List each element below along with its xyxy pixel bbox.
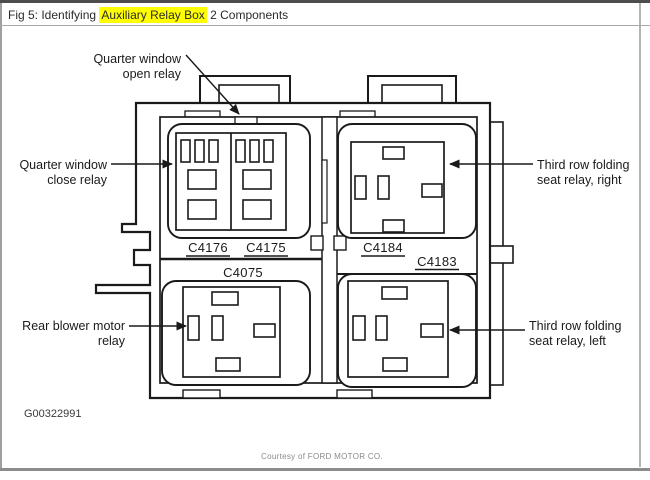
mounting-tab-right-inner: [382, 85, 442, 103]
bottom-notch-right: [337, 390, 372, 398]
pin-slot: [181, 140, 190, 162]
center-joint-left: [311, 236, 323, 250]
connector-label-c4075: C4075: [223, 265, 263, 280]
center-channel-rib: [322, 160, 327, 223]
figure-id: G00322991: [24, 408, 82, 420]
pin-slot: [383, 220, 404, 232]
relay-socket-quarter-window: [168, 117, 310, 238]
connector-label-c4183: C4183: [417, 254, 457, 269]
figure-title-highlight: Auxiliary Relay Box: [99, 7, 206, 23]
pin-slot: [236, 140, 245, 162]
pin-slot: [188, 316, 199, 340]
label-third-row-right-line2: seat relay, right: [537, 173, 622, 187]
label-quarter-close-line1: Quarter window: [19, 158, 108, 172]
pin-slot: [264, 140, 273, 162]
connector-label-c4184: C4184: [363, 240, 403, 255]
pin-slot: [355, 176, 366, 199]
label-third-row-left-line1: Third row folding: [529, 319, 621, 333]
pin-slot: [376, 316, 387, 340]
pin-slot: [209, 140, 218, 162]
label-quarter-open-line2: open relay: [123, 67, 182, 81]
pin-slot: [254, 324, 275, 337]
pin-slot: [243, 170, 271, 189]
pin-slot: [382, 287, 407, 299]
pin-slot: [212, 316, 223, 340]
mounting-tab-left-inner: [219, 85, 279, 103]
pin-slot: [212, 292, 238, 305]
pin-slot: [188, 170, 216, 189]
figure-title-suffix: 2 Components: [207, 8, 288, 22]
label-rear-blower-line2: relay: [98, 334, 126, 348]
connector-label-c4175: C4175: [246, 240, 286, 255]
pin-slot: [383, 358, 407, 371]
label-quarter-open-line1: Quarter window: [93, 52, 182, 66]
figure-title: Fig 5: Identifying Auxiliary Relay Box 2…: [8, 8, 288, 24]
label-rear-blower-line1: Rear blower motor: [22, 319, 125, 333]
label-third-row-left-line2: seat relay, left: [529, 334, 606, 348]
bottom-notch-left: [183, 390, 220, 398]
pin-slot: [353, 316, 365, 340]
pin-slot: [378, 176, 389, 199]
figure-title-prefix: Fig 5: Identifying: [8, 8, 99, 22]
courtesy-note: Courtesy of FORD MOTOR CO.: [261, 452, 383, 461]
center-joint-right: [334, 236, 346, 250]
housing-right-tab: [490, 246, 513, 263]
pin-slot: [216, 358, 240, 371]
pin-slot: [195, 140, 204, 162]
pin-slot: [421, 324, 443, 337]
relay-socket-third-row-right: [338, 124, 476, 238]
connector-label-c4176: C4176: [188, 240, 228, 255]
pin-slot: [243, 200, 271, 219]
pin-slot: [250, 140, 259, 162]
label-third-row-right-line1: Third row folding: [537, 158, 629, 172]
label-quarter-close-line2: close relay: [47, 173, 107, 187]
relay-socket-rear-blower: [162, 281, 310, 385]
pin-slot: [383, 147, 404, 159]
pin-slot: [422, 184, 442, 197]
pin-slot: [188, 200, 216, 219]
relay-box-diagram: C4176 C4175 C4184 C4183 C4075 Quarter wi…: [0, 0, 650, 480]
